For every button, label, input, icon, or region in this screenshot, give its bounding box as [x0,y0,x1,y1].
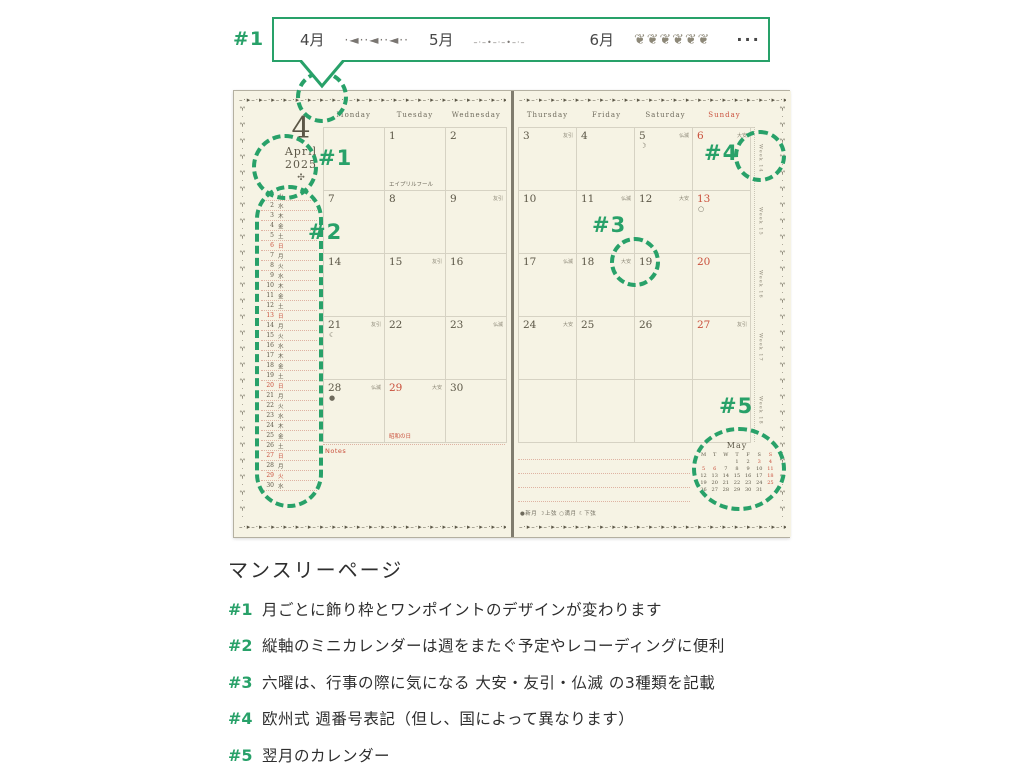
rokuyo-label: 大安 [432,384,442,391]
calendar-week-row: 1415友引16 [324,254,507,317]
border-pattern-top: –·▸–·▸–·▸–·▸–·▸–·▸–·▸–·▸–·▸–·▸–·▸–·▸–·▸–… [239,96,506,105]
badge-4: #4 [704,141,738,165]
day-number: 26 [639,319,652,331]
rokuyo-label: 仏滅 [371,384,381,391]
calendar-cell: 4 [577,128,635,191]
legend-item: #4欧州式 週番号表記（但し、国によって異なります） [228,707,725,729]
badge-5: #5 [719,394,753,418]
line-border-sample-icon: –·–•–·–•–·– [473,30,569,49]
week-number: Week 16 [755,253,766,316]
moon-phase-icon: ○ [698,205,704,213]
calendar-cell [519,380,577,443]
legend-item-text: 縦軸のミニカレンダーは週をまたぐ予定やレコーディングに便利 [262,634,725,656]
calendar-weeks: 1エイプリルフール2789友引1415友引1621友引☾2223仏滅28仏滅●2… [323,127,507,443]
calendar-week-row: 21友引☾2223仏滅 [324,317,507,380]
calendar-cell: 3友引 [519,128,577,191]
day-number: 30 [450,382,463,394]
calendar-week-row: 789友引 [324,191,507,254]
rokuyo-label: 友引 [563,132,573,139]
highlight-circle-5 [692,427,786,511]
day-number: 21 [328,319,341,331]
day-number: 1 [389,130,396,142]
day-number: 15 [389,256,402,268]
legend-item: #2縦軸のミニカレンダーは週をまたぐ予定やレコーディングに便利 [228,634,725,656]
highlight-circle-4 [734,130,786,182]
notes-area: Notes [323,444,505,502]
page: #1 4月·◄··◄··◄··5月–·–•–·–•–·–6月❦❦❦❦❦❦··· … [0,0,1024,768]
legend-item-text: 六曜は、行事の際に気になる 大安・友引・仏滅 の3種類を記載 [262,671,715,693]
weekday-header: Tuesday [384,111,445,127]
legend-item: #1月ごとに飾り枠とワンポイントのデザインが変わります [228,598,725,620]
calendar-cell: 24大安 [519,317,577,380]
holiday-note: 昭和の日 [389,432,411,440]
weekday-header: Saturday [636,111,695,127]
rokuyo-label: 友引 [371,321,381,328]
border-pattern-top: –·▸–·▸–·▸–·▸–·▸–·▸–·▸–·▸–·▸–·▸–·▸–·▸–·▸–… [519,96,786,105]
ellipsis-label: ··· [736,30,760,49]
weekday-header: Friday [577,111,636,127]
day-number: 13 [697,193,710,205]
feature-legend: マンスリーページ #1月ごとに飾り枠とワンポイントのデザインが変わります#2縦軸… [228,554,725,766]
callout-month-label: 6月 [589,29,614,50]
day-number: 5 [639,130,646,142]
week-number: Week 17 [755,316,766,379]
moon-phase-legend: ●新月 ☽上弦 ○満月 ☾下弦 [520,509,596,517]
rokuyo-label: 大安 [563,321,573,328]
legend-item-text: 月ごとに飾り枠とワンポイントのデザインが変わります [262,598,662,620]
moon-phase-icon: ☾ [329,331,335,339]
badge-1: #1 [318,146,352,170]
calendar-cell: 8 [385,191,446,254]
calendar-cell: 13○ [693,191,751,254]
border-pattern-bottom: –·▸–·▸–·▸–·▸–·▸–·▸–·▸–·▸–·▸–·▸–·▸–·▸–·▸–… [519,523,786,532]
day-number: 25 [581,319,594,331]
legend-item-tag: #4 [228,709,262,728]
calendar-cell: 30 [446,380,507,443]
rokuyo-label: 友引 [493,195,503,202]
day-number: 17 [523,256,536,268]
weekday-header-row: MondayTuesdayWednesday [323,111,507,127]
moon-phase-icon: ● [329,394,335,402]
legend-item-tag: #1 [228,600,262,619]
week-number: Week 15 [755,190,766,253]
month-frame-callout: 4月·◄··◄··◄··5月–·–•–·–•–·–6月❦❦❦❦❦❦··· [272,17,770,62]
callout-month-label: 5月 [429,29,454,50]
rokuyo-label: 友引 [432,258,442,265]
calendar-cell: 16 [446,254,507,317]
day-number: 18 [581,256,594,268]
rokuyo-label: 仏滅 [493,321,503,328]
notes-label: Notes [325,447,346,455]
weekday-header: Wednesday [446,111,507,127]
arrow-border-sample-icon: ·◄··◄··◄·· [345,33,409,47]
calendar-week-row: 28仏滅●29大安昭和の日30 [324,380,507,443]
border-pattern-left: ♈ · ♈ · ♈ · ♈ · ♈ · ♈ · ♈ · ♈ · ♈ · ♈ · … [238,106,247,522]
legend-item-tag: #3 [228,673,262,692]
border-pattern-bottom: –·▸–·▸–·▸–·▸–·▸–·▸–·▸–·▸–·▸–·▸–·▸–·▸–·▸–… [239,523,506,532]
calendar-cell: 29大安昭和の日 [385,380,446,443]
legend-item: #5翌月のカレンダー [228,744,725,766]
day-number: 3 [523,130,530,142]
calendar-cell: 1エイプリルフール [385,128,446,191]
calendar-cell: 27友引 [693,317,751,380]
day-number: 11 [581,193,594,205]
legend-item-tag: #5 [228,746,262,765]
rokuyo-label: 仏滅 [563,258,573,265]
calendar-cell: 23仏滅 [446,317,507,380]
legend-items: #1月ごとに飾り枠とワンポイントのデザインが変わります#2縦軸のミニカレンダーは… [228,598,725,766]
rokuyo-label: 友引 [737,321,747,328]
day-number: 23 [450,319,463,331]
day-number: 7 [328,193,335,205]
day-number: 24 [523,319,536,331]
day-number: 12 [639,193,652,205]
calendar-cell: 22 [385,317,446,380]
legend-item: #3六曜は、行事の際に気になる 大安・友引・仏滅 の3種類を記載 [228,671,725,693]
legend-title: マンスリーページ [228,554,725,583]
day-number: 28 [328,382,341,394]
badge-2: #2 [308,220,342,244]
day-number: 6 [697,130,704,142]
day-number: 20 [697,256,710,268]
day-number: 9 [450,193,457,205]
holiday-note: エイプリルフール [389,180,433,188]
day-number: 27 [697,319,710,331]
rokuyo-label: 大安 [679,195,689,202]
legend-item-tag: #2 [228,636,262,655]
day-number: 14 [328,256,341,268]
day-number: 2 [450,130,457,142]
ruled-notes-lines [518,446,690,502]
day-number: 16 [450,256,463,268]
weekday-header-row: ThursdayFridaySaturdaySunday [518,111,754,127]
calendar-cell: 14 [324,254,385,317]
calendar-week-row: 24大安252627友引 [519,317,754,380]
calendar-cell: 5仏滅☽ [635,128,693,191]
calendar-cell: 21友引☾ [324,317,385,380]
callout-tag-1: #1 [233,28,264,50]
day-number: 29 [389,382,402,394]
calendar-cell: 17仏滅 [519,254,577,317]
highlight-circle-3 [610,237,660,287]
callout-month-label: 4月 [300,29,325,50]
badge-3: #3 [592,213,626,237]
calendar-cell [635,380,693,443]
rokuyo-label: 仏滅 [679,132,689,139]
calendar-cell: 10 [519,191,577,254]
weekday-header: Sunday [695,111,754,127]
calendar-cell: 15友引 [385,254,446,317]
calendar-cell: 25 [577,317,635,380]
legend-item-text: 欧州式 週番号表記（但し、国によって異なります） [262,707,634,729]
calendar-cell: 28仏滅● [324,380,385,443]
calendar-cell: 9友引 [446,191,507,254]
calendar-cell [577,380,635,443]
rokuyo-label: 仏滅 [621,195,631,202]
day-number: 22 [389,319,402,331]
day-number: 4 [581,130,588,142]
floral-border-sample-icon: ❦❦❦❦❦❦ [634,32,710,48]
calendar-cell: 20 [693,254,751,317]
calendar-cell: 26 [635,317,693,380]
day-number: 8 [389,193,396,205]
weekday-header: Thursday [518,111,577,127]
day-number: 10 [523,193,536,205]
legend-item-text: 翌月のカレンダー [262,744,390,766]
callout-pointer-icon [298,60,346,90]
calendar-cell: 2 [446,128,507,191]
moon-phase-icon: ☽ [640,142,646,150]
